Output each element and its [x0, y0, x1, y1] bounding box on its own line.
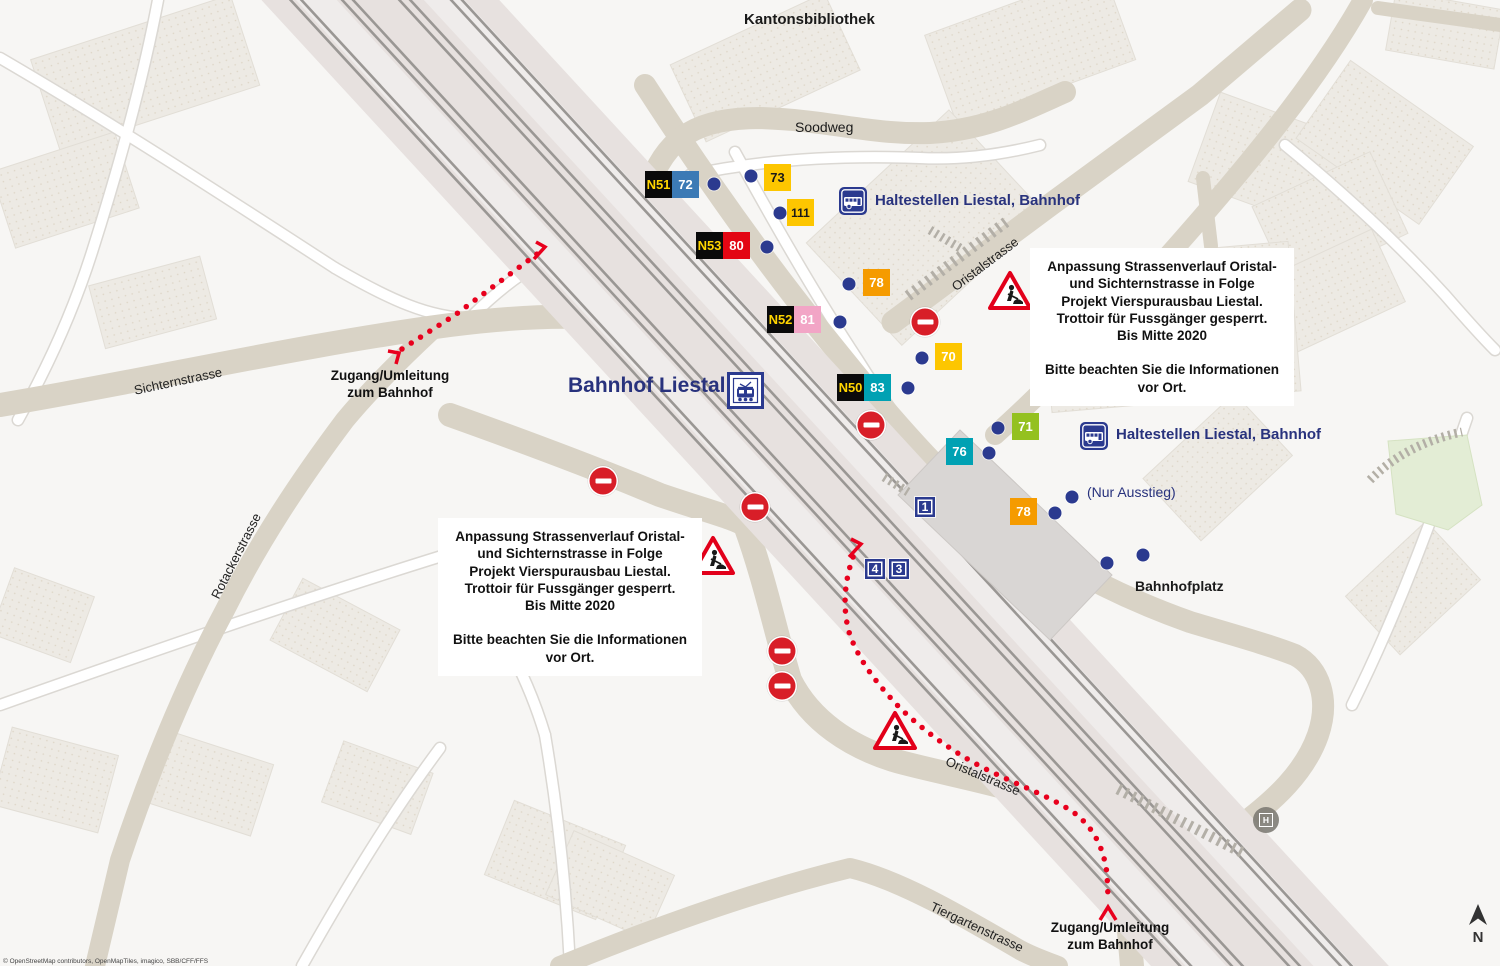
no-entry-sign — [858, 412, 885, 439]
bus-stop-dot — [774, 207, 787, 220]
notice-paragraph: Anpassung Strassenverlauf Oristal- und S… — [444, 528, 696, 614]
construction-notice-west: Anpassung Strassenverlauf Oristal- und S… — [438, 518, 702, 676]
bus-icon — [1079, 421, 1109, 451]
no-entry-bar — [863, 423, 879, 428]
north-arrow-icon — [1466, 903, 1490, 927]
nur-ausstieg-label: (Nur Ausstieg) — [1087, 484, 1176, 500]
bus-stop-dot — [834, 316, 847, 329]
north-arrow: N — [1466, 903, 1490, 946]
bus-stop-dot — [1137, 549, 1150, 562]
station-name-label: Bahnhof Liestal — [568, 374, 726, 398]
north-label: N — [1466, 929, 1490, 946]
kantonsbibliothek-label: Kantonsbibliothek — [744, 11, 875, 28]
line-badge-71: 71 — [1012, 413, 1039, 440]
line-badge-76: 76 — [946, 438, 973, 465]
no-entry-sign — [742, 494, 769, 521]
line-badge-80: 80 — [723, 232, 750, 259]
bus-stop-dot — [1066, 491, 1079, 504]
line-badge-83: 83 — [864, 374, 891, 401]
bus-stop-dot — [902, 382, 915, 395]
bus-icon — [838, 186, 868, 216]
line-badge-72: 72 — [672, 171, 699, 198]
haltestelle-h-icon: H — [1253, 807, 1279, 833]
platform-badge-3: 3 — [889, 559, 909, 579]
soodweg-label: Soodweg — [795, 119, 853, 135]
line-badge-111: 111 — [787, 199, 814, 226]
haltestellen-label-north: Haltestellen Liestal, Bahnhof — [875, 192, 1080, 209]
roadworks-sign-icon — [872, 710, 918, 752]
construction-notice-east: Anpassung Strassenverlauf Oristal- und S… — [1030, 248, 1294, 406]
bus-stop-dot — [1101, 557, 1114, 570]
line-badge-70: 70 — [935, 343, 962, 370]
park — [1370, 432, 1482, 530]
notice-paragraph: Bitte beachten Sie die Informationen vor… — [1036, 361, 1288, 396]
no-entry-sign — [912, 309, 939, 336]
no-entry-bar — [595, 479, 611, 484]
bus-stop-dot — [843, 278, 856, 291]
no-entry-bar — [774, 649, 790, 654]
no-entry-sign — [769, 673, 796, 700]
bus-stop-dot — [761, 241, 774, 254]
line-badge-n52: N52 — [767, 306, 794, 333]
haltestellen-label-south: Haltestellen Liestal, Bahnhof — [1116, 426, 1321, 443]
bahnhofplatz-label: Bahnhofplatz — [1135, 578, 1224, 594]
haltestelle-h-label: H — [1259, 813, 1273, 827]
no-entry-bar — [774, 684, 790, 689]
no-entry-sign — [590, 468, 617, 495]
bus-stop-dot — [1049, 507, 1062, 520]
notice-paragraph: Bitte beachten Sie die Informationen vor… — [444, 631, 696, 666]
bus-stop-dot — [916, 352, 929, 365]
line-badge-78-upper: 78 — [863, 269, 890, 296]
detour-label-south: Zugang/Umleitung zum Bahnhof — [1025, 920, 1195, 954]
line-badge-n53: N53 — [696, 232, 723, 259]
platform-badge-4: 4 — [865, 559, 885, 579]
line-badge-78-lower: 78 — [1010, 498, 1037, 525]
map-attribution: © OpenStreetMap contributors, OpenMapTil… — [3, 958, 208, 965]
bus-stop-dot — [745, 170, 758, 183]
liestal-station-map: N51 72 73 111 N53 80 78 N52 81 70 N50 83… — [0, 0, 1500, 966]
no-entry-bar — [917, 320, 933, 325]
bus-stop-dot — [992, 422, 1005, 435]
line-badge-n51: N51 — [645, 171, 672, 198]
bus-stop-dot — [708, 178, 721, 191]
roadworks-sign-icon — [987, 270, 1033, 312]
no-entry-sign — [769, 638, 796, 665]
detour-label-west: Zugang/Umleitung zum Bahnhof — [305, 368, 475, 402]
notice-paragraph: Anpassung Strassenverlauf Oristal- und S… — [1036, 258, 1288, 344]
bus-stop-dot — [983, 447, 996, 460]
line-badge-n50: N50 — [837, 374, 864, 401]
line-badge-81: 81 — [794, 306, 821, 333]
train-station-icon — [727, 372, 764, 409]
platform-badge-1: 1 — [915, 497, 935, 517]
no-entry-bar — [747, 505, 763, 510]
line-badge-73: 73 — [764, 164, 791, 191]
